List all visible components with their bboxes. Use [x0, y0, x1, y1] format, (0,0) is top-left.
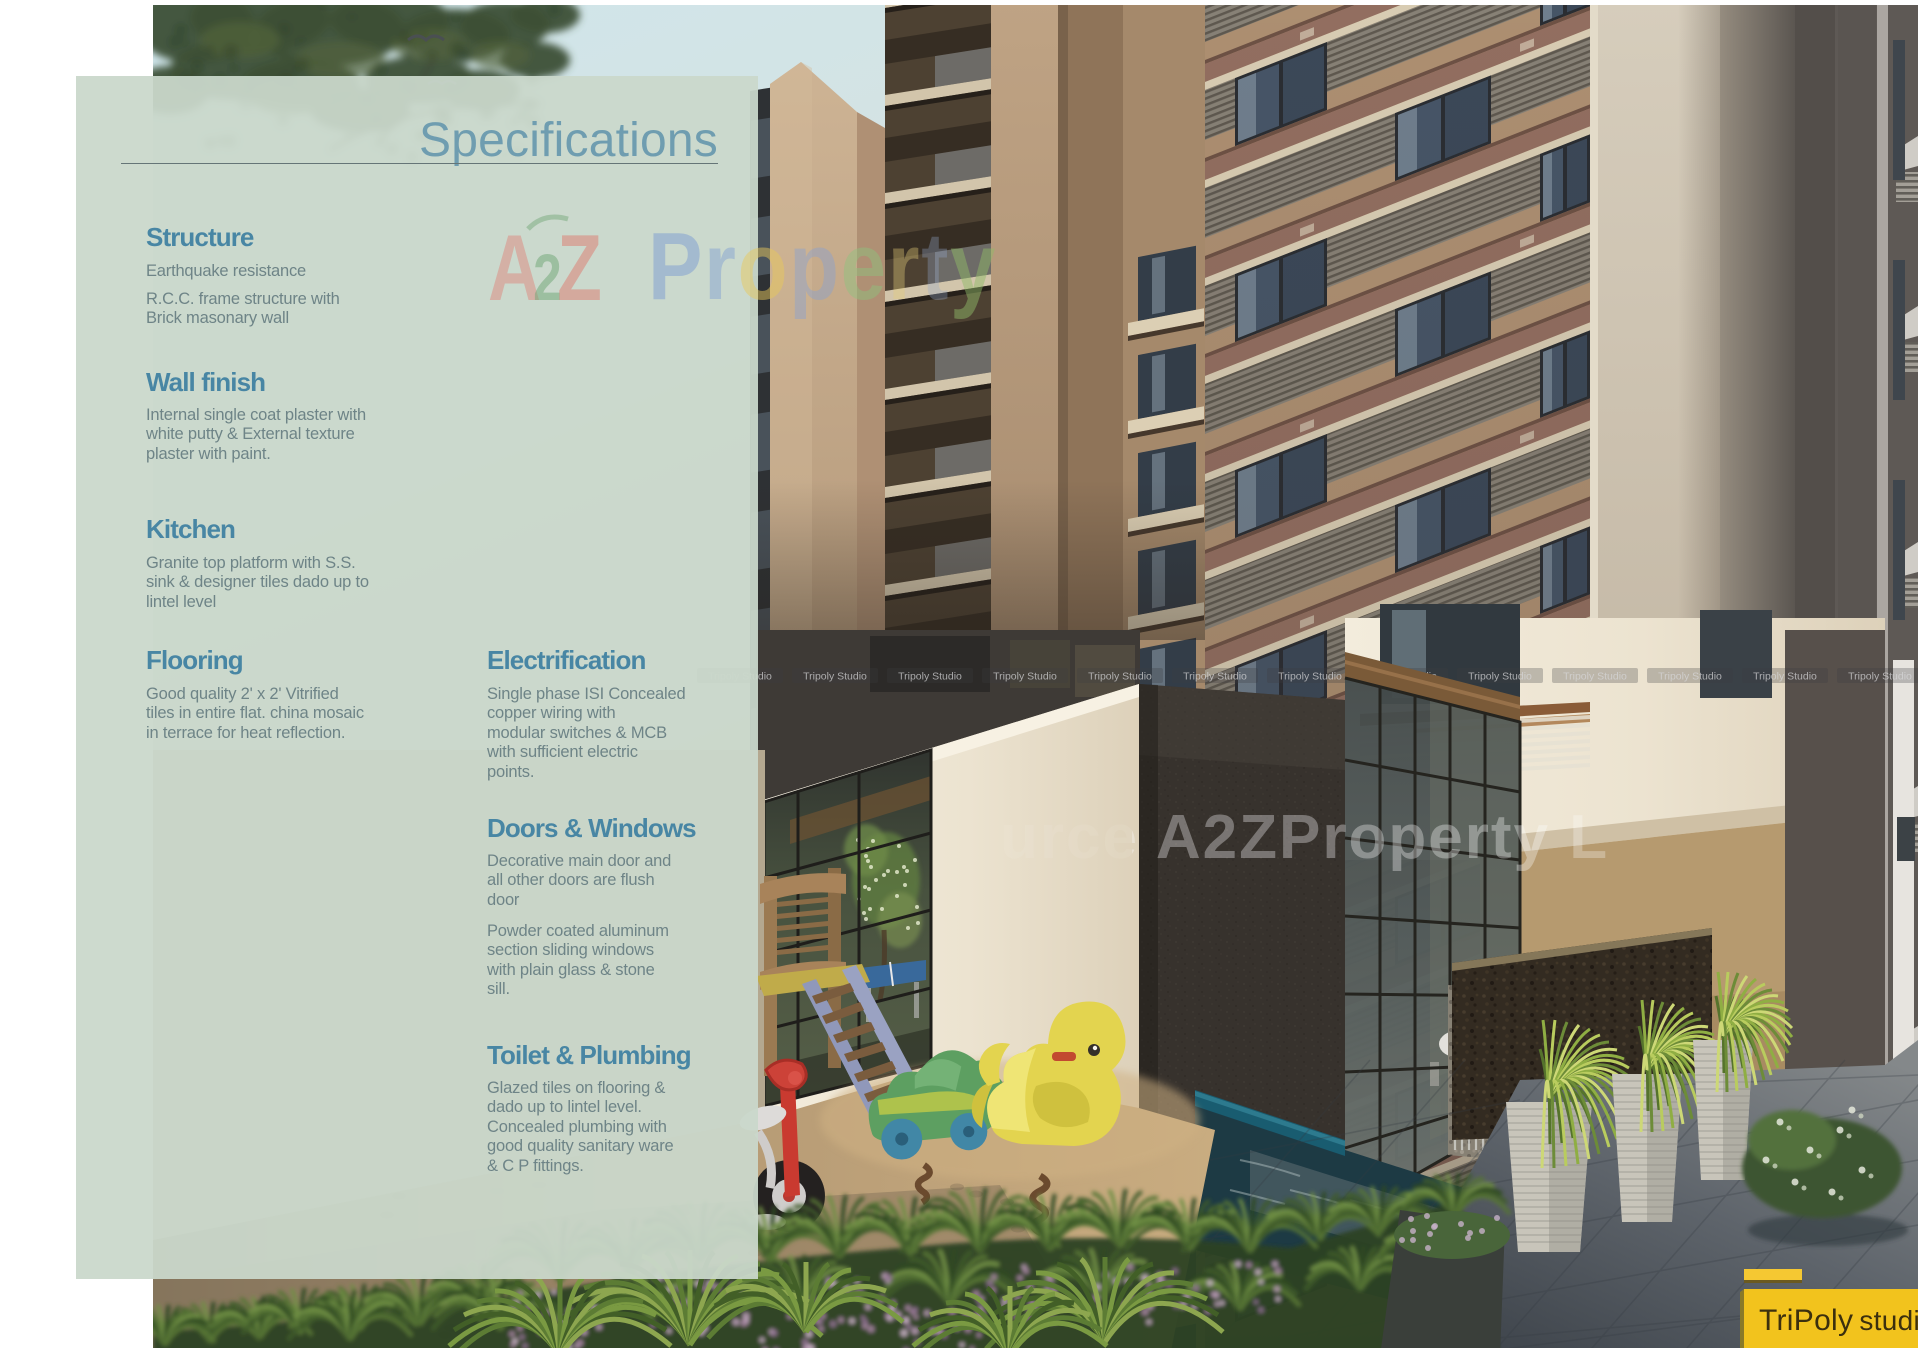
svg-text:TriPolystudi: TriPolystudi [1759, 1304, 1918, 1337]
svg-text:Tripoly Studio: Tripoly Studio [1563, 671, 1627, 683]
svg-text:Tripoly Studio: Tripoly Studio [1658, 671, 1722, 683]
svg-text:urce A2ZProperty: urce A2ZProperty [1000, 803, 1550, 872]
svg-text:Tripoly Studio: Tripoly Studio [1753, 671, 1817, 683]
svg-text:Tripoly Studio: Tripoly Studio [1088, 671, 1152, 683]
svg-text:Tripoly Studio: Tripoly Studio [1278, 671, 1342, 683]
svg-text:Tripoly Studio: Tripoly Studio [898, 671, 962, 683]
svg-text:Tripoly Studio: Tripoly Studio [1468, 671, 1532, 683]
svg-text:Tripoly Studio: Tripoly Studio [803, 671, 867, 683]
svg-text:Tripoly Studio: Tripoly Studio [1848, 671, 1912, 683]
svg-text:Tripoly Studio: Tripoly Studio [993, 671, 1057, 683]
svg-text:Tripoly Studio: Tripoly Studio [1183, 671, 1247, 683]
